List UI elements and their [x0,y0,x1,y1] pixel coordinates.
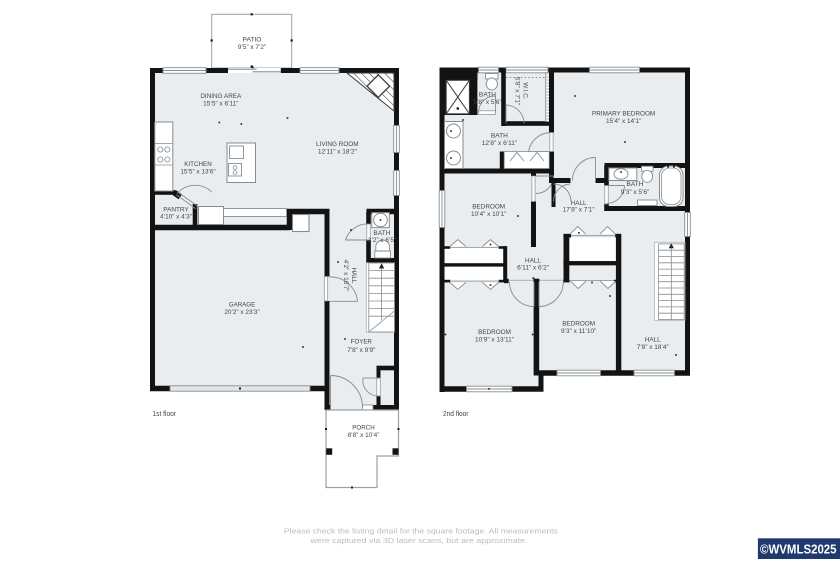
svg-text:8’8” x 10’4”: 8’8” x 10’4” [348,432,380,439]
svg-text:15’5” x 6’11”: 15’5” x 6’11” [203,101,238,108]
svg-text:DINING AREA: DINING AREA [200,93,242,100]
svg-text:4’2” x 16’7”: 4’2” x 16’7” [342,260,349,292]
svg-text:FOYER: FOYER [351,338,372,345]
svg-text:9’5” x 7’2”: 9’5” x 7’2” [238,44,266,51]
svg-text:5’8” x 7’1”: 5’8” x 7’1” [514,77,521,105]
svg-text:15’5” x 13’6”: 15’5” x 13’6” [180,169,215,176]
svg-text:BATH: BATH [373,230,390,237]
svg-text:PORCH: PORCH [352,425,375,432]
svg-text:20’2” x 23’3”: 20’2” x 23’3” [224,309,259,316]
svg-text:6’11” x 6’2”: 6’11” x 6’2” [517,265,549,272]
svg-text:PANTRY: PANTRY [163,207,189,214]
svg-text:2nd floor: 2nd floor [443,409,469,418]
svg-text:3’2” x 6’5”: 3’2” x 6’5” [368,237,396,244]
svg-text:17’8” x 7’1”: 17’8” x 7’1” [563,206,595,213]
svg-text:©WVMLS2025: ©WVMLS2025 [760,542,837,557]
svg-text:BEDROOM: BEDROOM [472,203,505,210]
svg-text:BATH: BATH [491,133,508,140]
svg-text:KITCHEN: KITCHEN [184,161,212,168]
svg-text:BATH: BATH [479,92,496,99]
svg-text:were captured via 3D laser sca: were captured via 3D laser scans, but ar… [309,536,527,545]
svg-text:BEDROOM: BEDROOM [562,320,595,327]
svg-text:GARAGE: GARAGE [229,301,256,308]
svg-text:9’3” x 11’10”: 9’3” x 11’10” [561,328,596,335]
svg-text:10’9” x 13’11”: 10’9” x 13’11” [475,337,514,344]
svg-text:7’8” x 18’4”: 7’8” x 18’4” [637,344,669,351]
svg-text:5’8” x 5’6”: 5’8” x 5’6” [473,99,501,106]
svg-text:4’10” x 4’3”: 4’10” x 4’3” [160,214,192,221]
svg-text:12’8” x 6’11”: 12’8” x 6’11” [482,140,517,147]
svg-text:BATH: BATH [626,181,643,188]
svg-text:1st floor: 1st floor [153,409,177,418]
svg-text:HALL: HALL [525,257,541,264]
svg-text:BEDROOM: BEDROOM [478,329,511,336]
svg-text:PRIMARY BEDROOM: PRIMARY BEDROOM [592,110,655,117]
svg-text:12’11” x 18’2”: 12’11” x 18’2” [318,149,357,156]
svg-text:HALL: HALL [645,336,661,343]
svg-text:LIVING ROOM: LIVING ROOM [316,141,359,148]
svg-text:10’4” x 10’1”: 10’4” x 10’1” [471,211,506,218]
svg-text:7’8” x 9’9”: 7’8” x 9’9” [347,347,375,354]
svg-text:Please check the listing detai: Please check the listing detail for the … [284,527,558,536]
svg-text:PATIO: PATIO [243,36,262,43]
svg-text:15’4” x 14’1”: 15’4” x 14’1” [606,118,641,125]
svg-text:HALL: HALL [350,268,357,284]
svg-text:9’3” x 5’6”: 9’3” x 5’6” [621,189,649,196]
svg-text:W.I.C.: W.I.C. [522,82,529,99]
